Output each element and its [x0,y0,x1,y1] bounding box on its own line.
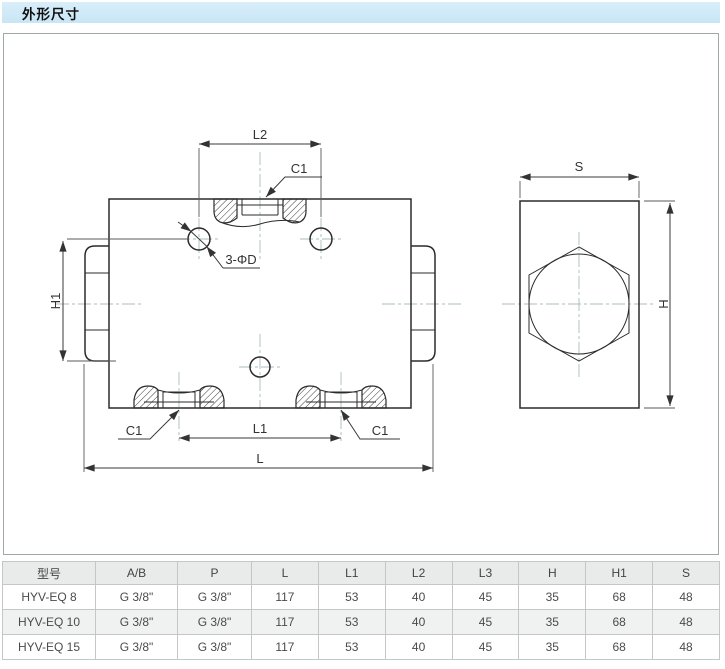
table-head: 型号A/BPLL1L2L3HH1S [3,562,720,585]
table-cell: 45 [452,610,519,635]
table-cell: 68 [586,610,653,635]
side-dimensions: S H [520,159,675,408]
table-cell: G 3/8" [96,610,178,635]
table-cell: HYV-EQ 15 [3,635,96,660]
table-cell: 53 [318,635,385,660]
table-cell: 68 [586,635,653,660]
table-body: HYV-EQ 8G 3/8"G 3/8"117534045356848HYV-E… [3,585,720,660]
section-title: 外形尺寸 [2,3,80,23]
table-cell: G 3/8" [178,635,252,660]
table-cell: G 3/8" [178,610,252,635]
table-header-cell: H1 [586,562,653,585]
table-row: HYV-EQ 15G 3/8"G 3/8"117534045356848 [3,635,720,660]
table-cell: 117 [252,585,319,610]
table-cell: HYV-EQ 10 [3,610,96,635]
table-cell: 53 [318,610,385,635]
table-header-cell: L [252,562,319,585]
front-view: L2 C1 3-ΦD H1 L1 [48,127,462,472]
front-centerlines [56,152,462,441]
table-row: HYV-EQ 8G 3/8"G 3/8"117534045356848 [3,585,720,610]
table-cell: HYV-EQ 8 [3,585,96,610]
dim-label-l1: L1 [253,421,267,436]
table-header-row: 型号A/BPLL1L2L3HH1S [3,562,720,585]
table-cell: 35 [519,635,586,660]
dim-label-h1: H1 [48,293,63,310]
dim-label-s: S [575,159,584,174]
dim-label-c1-top: C1 [291,161,308,176]
table-header-cell: S [653,562,720,585]
table-cell: 48 [653,585,720,610]
table-cell: 40 [385,635,452,660]
dim-label-c1-br: C1 [372,423,389,438]
front-dimensions: L2 C1 3-ΦD H1 L1 [48,127,433,472]
table-cell: 40 [385,610,452,635]
table-cell: 48 [653,635,720,660]
table-cell: 48 [653,610,720,635]
table-cell: G 3/8" [96,635,178,660]
dim-label-hole-note: 3-ΦD [225,252,256,267]
table-cell: G 3/8" [178,585,252,610]
side-body-outline [520,201,639,408]
dimension-table: 型号A/BPLL1L2L3HH1S HYV-EQ 8G 3/8"G 3/8"11… [2,561,720,660]
table-header-cell: P [178,562,252,585]
section-header: 外形尺寸 [2,2,720,23]
table-header-cell: L3 [452,562,519,585]
table-header-cell: H [519,562,586,585]
table-cell: 40 [385,585,452,610]
table-header-cell: L2 [385,562,452,585]
dim-label-c1-bl: C1 [126,423,143,438]
side-view: S H [502,159,675,408]
table-cell: 45 [452,585,519,610]
dim-label-l: L [256,451,263,466]
table-cell: 35 [519,610,586,635]
dim-label-h: H [656,299,671,308]
table-cell: 35 [519,585,586,610]
table-cell: 117 [252,610,319,635]
table-header-cell: A/B [96,562,178,585]
table-cell: 53 [318,585,385,610]
table-header-cell: 型号 [3,562,96,585]
table-cell: 117 [252,635,319,660]
table-cell: 45 [452,635,519,660]
dim-label-l2: L2 [253,127,267,142]
table-cell: 68 [586,585,653,610]
dimension-drawing: L2 C1 3-ΦD H1 L1 [3,33,719,555]
table-header-cell: L1 [318,562,385,585]
table-cell: G 3/8" [96,585,178,610]
page: 外形尺寸 [0,0,725,669]
table-row: HYV-EQ 10G 3/8"G 3/8"117534045356848 [3,610,720,635]
drawing-svg: L2 C1 3-ΦD H1 L1 [4,34,718,554]
